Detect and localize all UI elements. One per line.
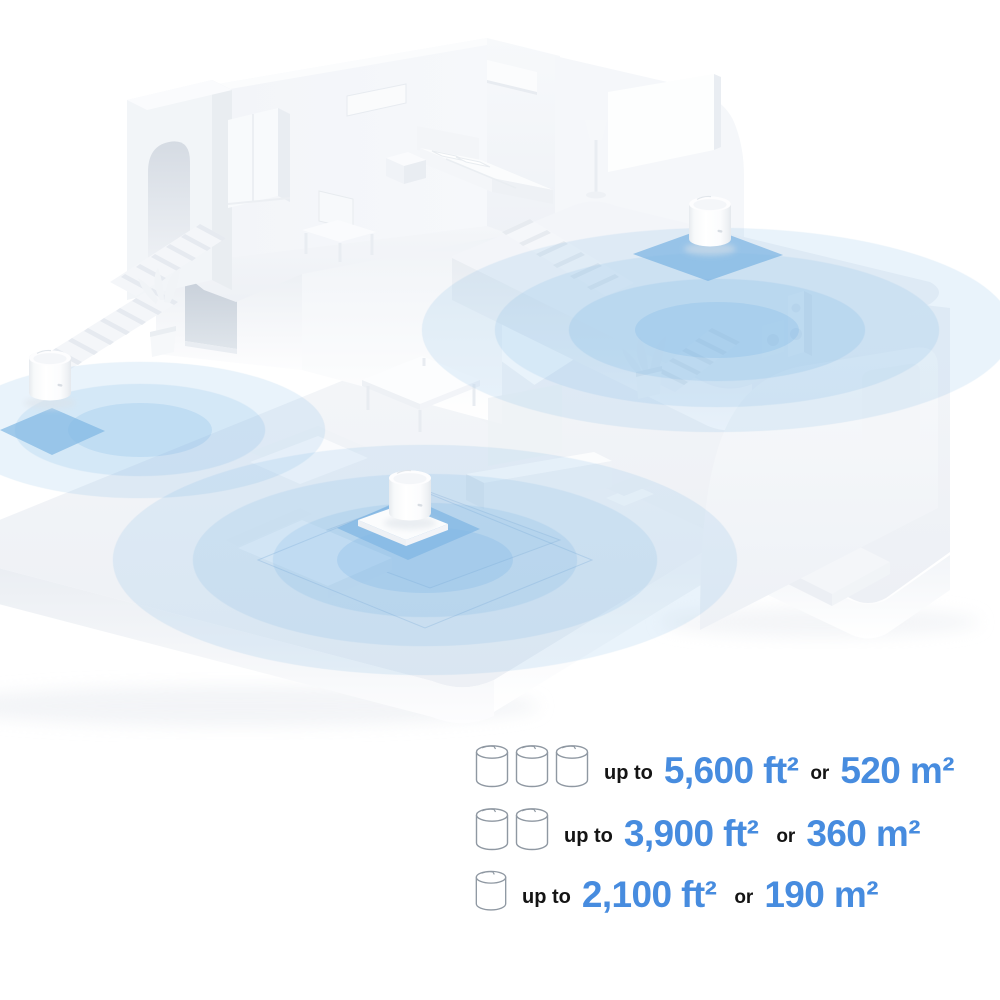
wardrobe bbox=[228, 108, 290, 208]
wifi-coverage-illustration: up to 5,600 ft² or 520 m² up to 3,900 ft… bbox=[0, 0, 1000, 1000]
mesh-wifi-unit-center bbox=[384, 470, 436, 529]
mesh-wifi-unit-top-right bbox=[684, 196, 736, 255]
mesh-wifi-unit-left bbox=[24, 350, 76, 409]
wifi-zone-center bbox=[113, 445, 737, 675]
house-isometric-scene bbox=[0, 0, 1000, 1000]
